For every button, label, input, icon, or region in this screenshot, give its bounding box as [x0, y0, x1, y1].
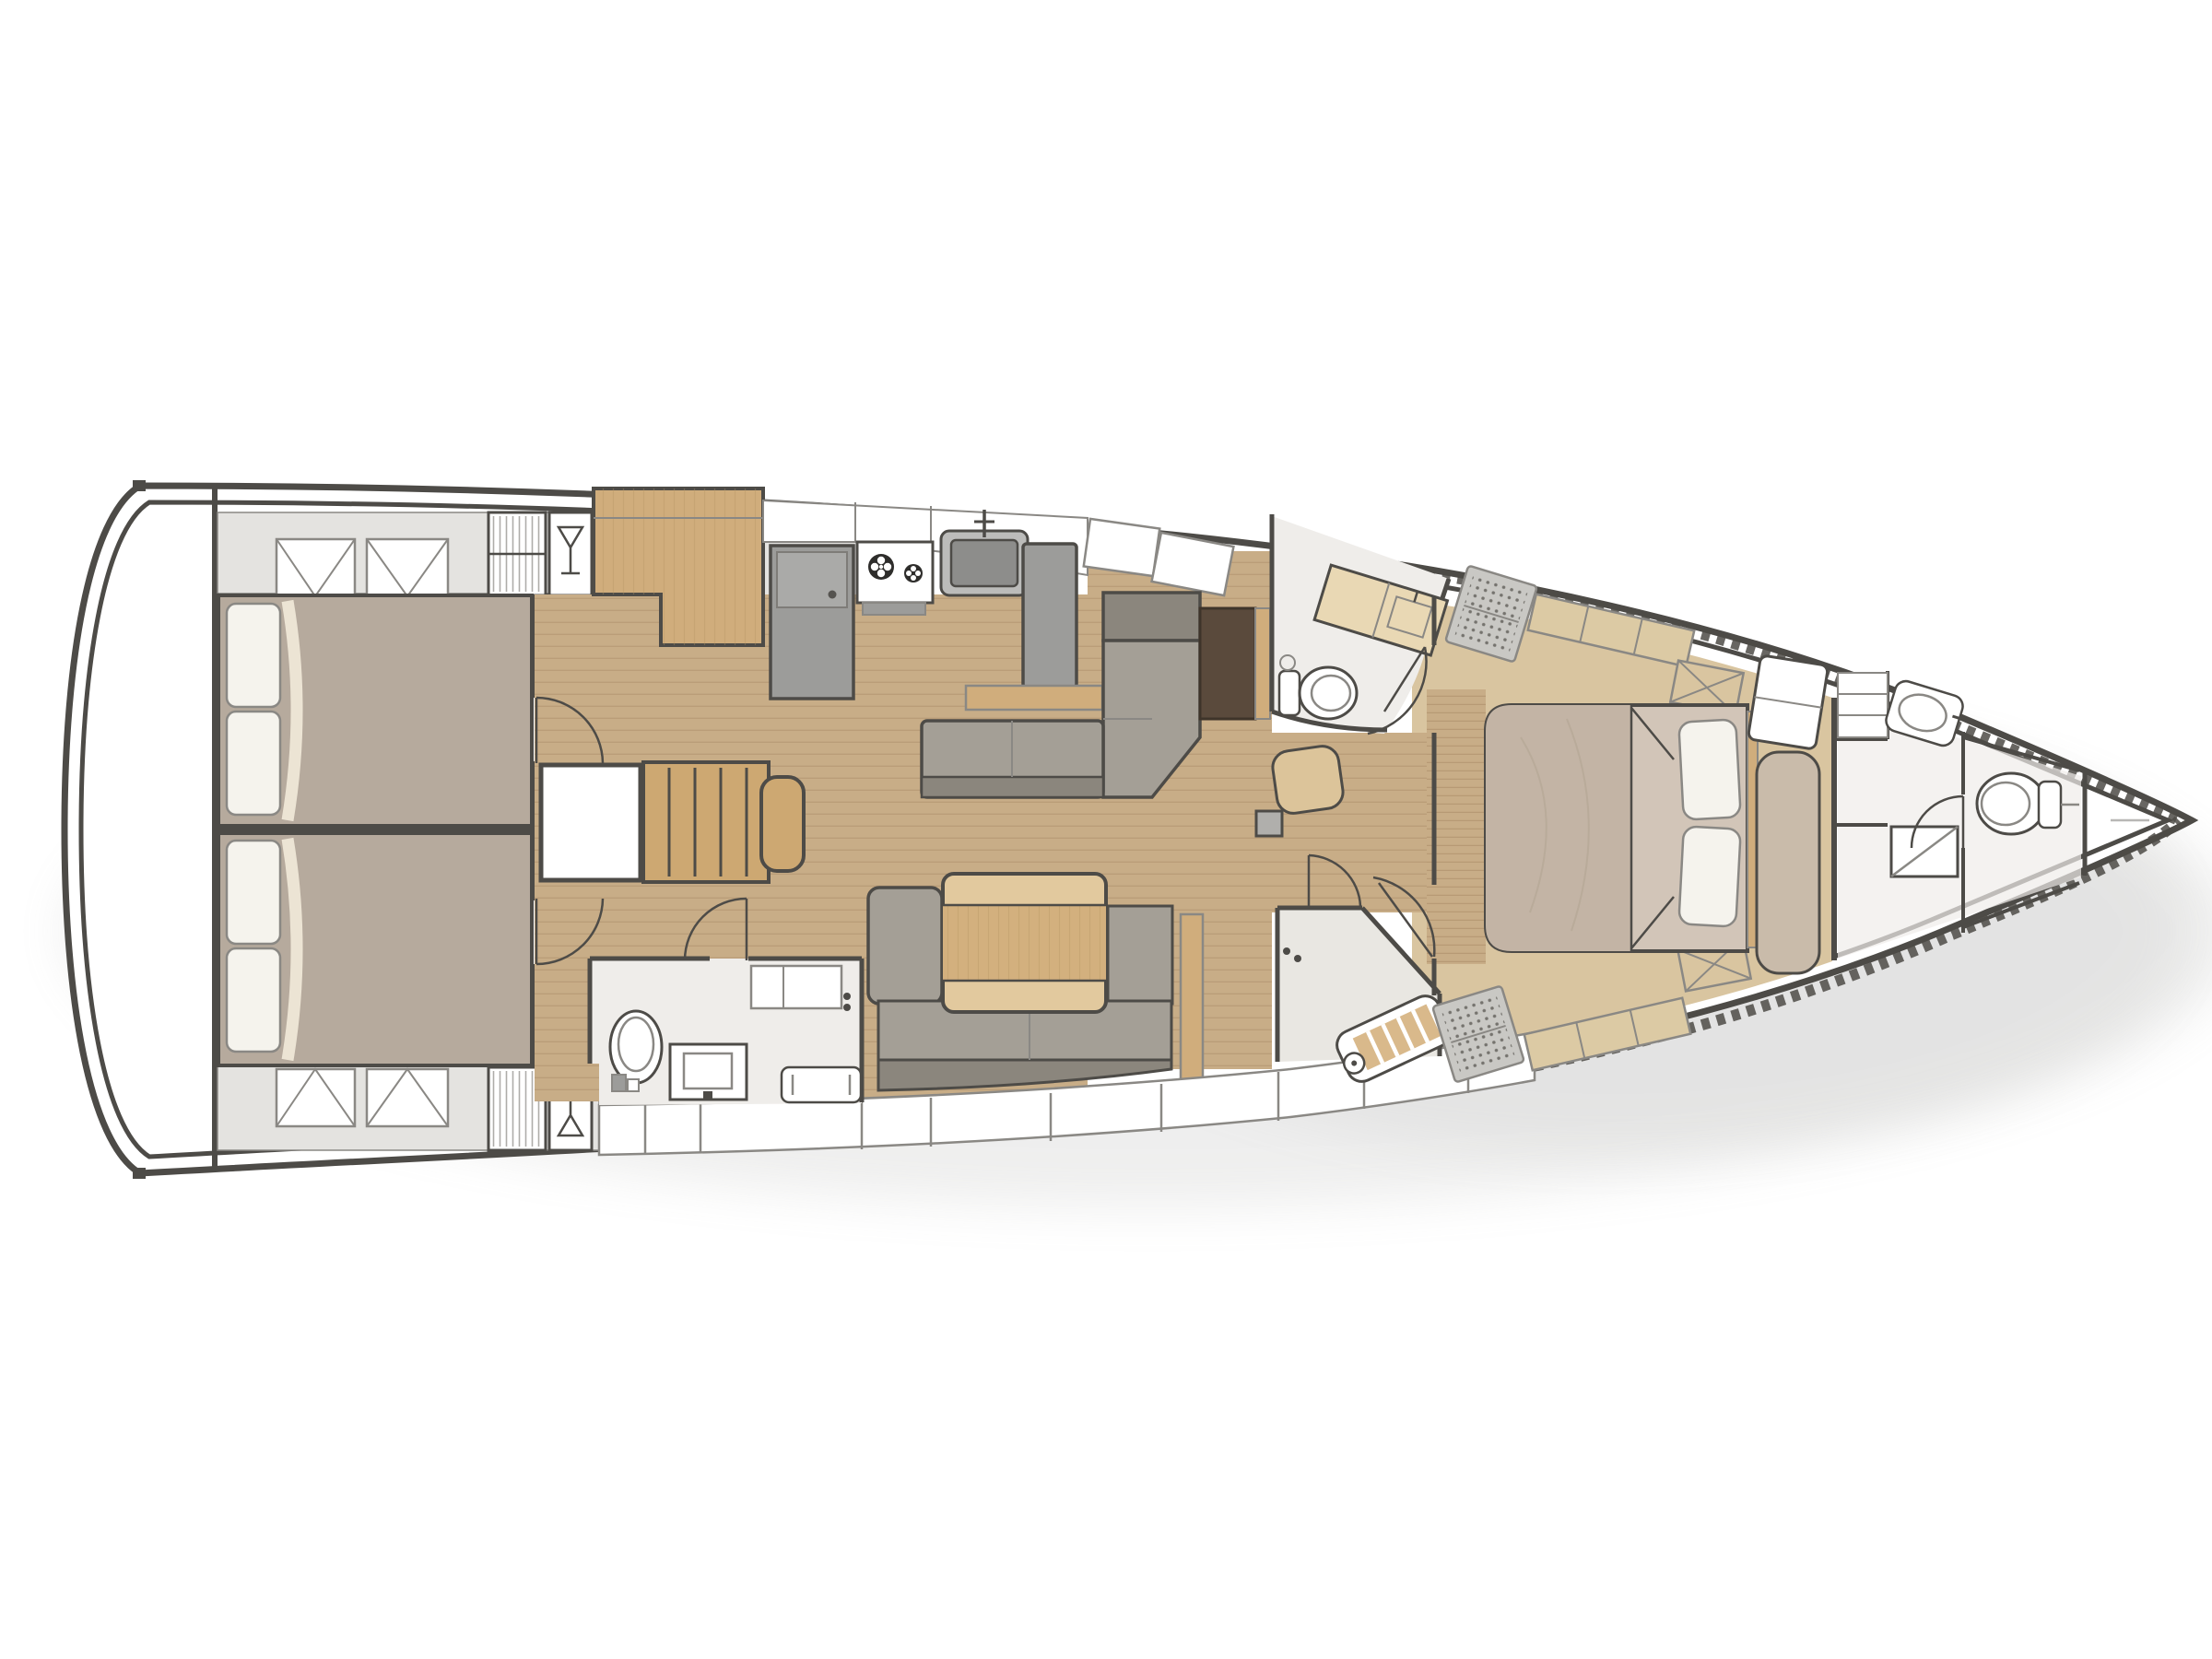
transom-corner-fitting-top — [133, 480, 146, 491]
door-handle — [1283, 947, 1290, 955]
hatch-frame — [367, 1069, 448, 1126]
locker-stripes — [492, 1071, 542, 1147]
bench-seat — [1757, 752, 1819, 973]
sofa-cushion-right — [1108, 906, 1172, 1004]
table-grain — [943, 905, 1106, 981]
wardrobe-locker — [488, 512, 546, 595]
toilet-pump — [628, 1079, 639, 1091]
pillow — [227, 604, 280, 707]
burner-icon — [868, 554, 894, 580]
aft-cabin-port — [218, 833, 532, 1065]
door-handle — [1294, 955, 1301, 962]
pillow — [1678, 826, 1740, 926]
stove — [857, 542, 933, 615]
nav-seat — [1271, 744, 1346, 815]
shelves — [1838, 673, 1888, 737]
hull-locker — [1084, 519, 1159, 576]
peninsula-ledge — [966, 686, 1102, 710]
floor-plan-canvas — [0, 0, 2212, 1659]
mast-step — [1256, 811, 1282, 836]
chart-table — [1200, 608, 1255, 719]
glass-locker — [549, 512, 592, 595]
settee-back — [1103, 593, 1200, 641]
sofa-wood-trim — [1181, 914, 1203, 1089]
toilet-tank — [1279, 671, 1300, 715]
settee-bench-back — [922, 777, 1103, 797]
pillow — [227, 841, 280, 944]
deck-hatch — [276, 539, 355, 596]
transom-corner-fitting-bottom — [133, 1168, 146, 1179]
peninsula-counter — [1023, 544, 1077, 688]
sink-basin — [951, 540, 1018, 586]
shower-door-handle — [843, 1004, 851, 1011]
yacht-floor-plan — [0, 0, 2212, 1659]
washbasin-icon — [670, 1044, 747, 1100]
blanket — [1486, 705, 1631, 951]
island-berth — [1486, 705, 1758, 951]
wall-cabinet — [751, 966, 841, 1008]
companionway — [541, 762, 804, 882]
toilet-pump — [612, 1075, 626, 1091]
shower-bench — [782, 1067, 861, 1102]
hatch-frame — [276, 539, 355, 596]
fridge-door — [777, 552, 847, 607]
shower-area — [1891, 827, 1958, 877]
salon-port — [868, 874, 1203, 1090]
companionway-stairs — [643, 762, 769, 882]
deck-hatch — [367, 1069, 448, 1126]
shower-door-handle — [843, 993, 851, 1000]
refrigerator — [771, 546, 853, 699]
pillow — [1678, 719, 1740, 819]
aft-cabin-starboard — [218, 595, 532, 826]
burner-icon — [904, 564, 923, 582]
dresser — [1747, 655, 1828, 749]
deck-hatch — [276, 1069, 355, 1126]
stair-landing — [761, 777, 804, 871]
fridge-handle — [829, 591, 837, 599]
salon-table — [943, 874, 1106, 1012]
hatch-frame — [367, 539, 448, 596]
aft-head — [590, 959, 862, 1105]
pillow — [227, 712, 280, 815]
basin-tap — [703, 1091, 712, 1100]
chart-table-trim — [1255, 608, 1270, 719]
hatch-frame — [276, 1069, 355, 1126]
toilet-tank — [2039, 782, 2061, 828]
pillow — [227, 948, 280, 1052]
deck-hatch — [367, 539, 448, 596]
sofa-arm — [868, 888, 942, 1004]
stove-drawer — [863, 603, 925, 615]
engine-compartment — [541, 765, 641, 880]
